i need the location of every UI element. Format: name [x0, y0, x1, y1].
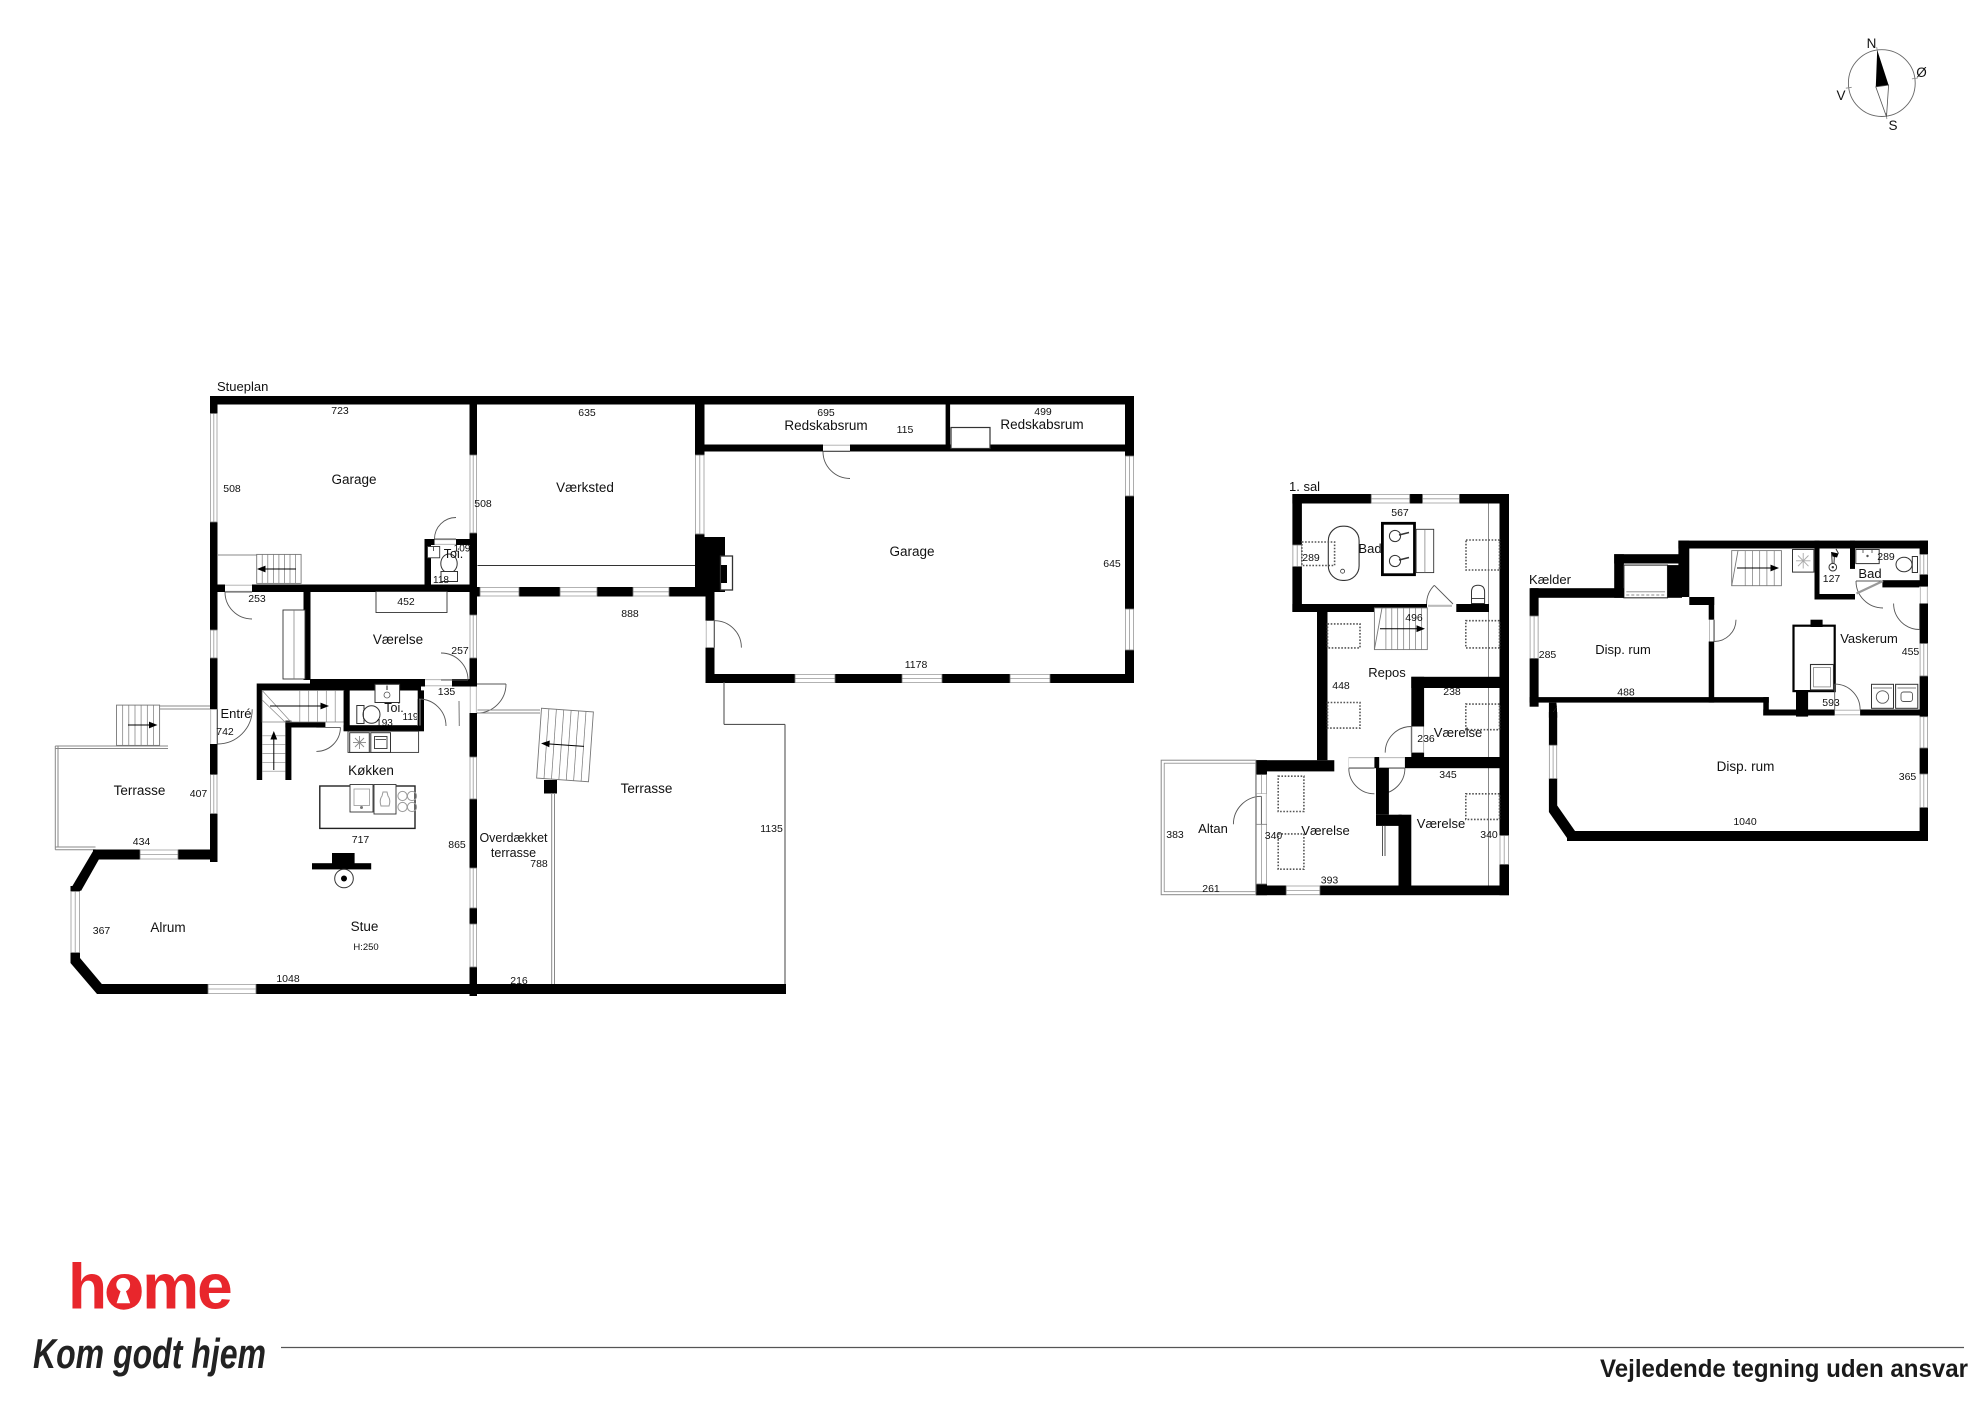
svg-text:499: 499	[1034, 406, 1052, 418]
svg-text:717: 717	[352, 834, 370, 846]
svg-text:393: 393	[1321, 875, 1339, 887]
svg-text:723: 723	[331, 405, 349, 417]
svg-text:216: 216	[510, 975, 528, 987]
svg-text:888: 888	[621, 608, 639, 620]
svg-text:253: 253	[248, 593, 266, 605]
svg-text:Overdækket: Overdækket	[479, 831, 548, 845]
svg-text:645: 645	[1103, 558, 1121, 570]
svg-text:261: 261	[1202, 883, 1220, 895]
svg-text:Redskabsrum: Redskabsrum	[784, 418, 867, 433]
svg-text:407: 407	[190, 788, 208, 800]
svg-text:Terrasse: Terrasse	[621, 781, 673, 796]
svg-text:593: 593	[1822, 697, 1840, 709]
svg-text:340: 340	[1480, 829, 1498, 841]
svg-text:home: home	[68, 1251, 231, 1323]
svg-text:Toi.: Toi.	[384, 701, 403, 715]
svg-text:Kom godt hjem: Kom godt hjem	[33, 1330, 266, 1377]
svg-text:135: 135	[438, 686, 456, 698]
svg-text:Disp. rum: Disp. rum	[1595, 642, 1651, 657]
svg-text:127: 127	[1823, 573, 1841, 585]
svg-text:Repos: Repos	[1368, 665, 1406, 680]
svg-text:788: 788	[530, 858, 548, 870]
svg-text:Alrum: Alrum	[150, 920, 185, 935]
svg-text:Værelse: Værelse	[373, 632, 423, 647]
svg-text:Kælder: Kælder	[1529, 572, 1572, 587]
svg-text:236: 236	[1417, 733, 1435, 745]
svg-text:Vaskerum: Vaskerum	[1840, 631, 1898, 646]
svg-text:345: 345	[1439, 769, 1457, 781]
svg-text:Bad: Bad	[1858, 566, 1881, 581]
svg-text:508: 508	[223, 483, 241, 495]
svg-text:340: 340	[1265, 830, 1283, 842]
svg-text:496: 496	[1405, 612, 1423, 624]
svg-text:Garage: Garage	[889, 544, 934, 559]
svg-text:H:250: H:250	[353, 942, 378, 953]
svg-text:Altan: Altan	[1198, 821, 1228, 836]
svg-text:109: 109	[454, 544, 471, 555]
svg-text:Værelse: Værelse	[1417, 816, 1465, 831]
svg-text:Ø: Ø	[1916, 65, 1927, 80]
svg-text:Køkken: Køkken	[348, 763, 394, 778]
svg-text:S: S	[1888, 118, 1897, 133]
svg-text:289: 289	[1877, 551, 1895, 563]
svg-text:1. sal: 1. sal	[1289, 479, 1320, 494]
svg-text:742: 742	[216, 726, 234, 738]
svg-text:488: 488	[1617, 687, 1635, 699]
svg-text:455: 455	[1902, 646, 1920, 658]
svg-text:1048: 1048	[276, 973, 300, 985]
svg-text:448: 448	[1332, 680, 1350, 692]
svg-text:1040: 1040	[1733, 816, 1757, 828]
svg-text:Stueplan: Stueplan	[217, 379, 268, 394]
svg-text:383: 383	[1166, 829, 1184, 841]
svg-text:238: 238	[1443, 686, 1461, 698]
svg-text:285: 285	[1539, 649, 1557, 661]
svg-text:119: 119	[403, 712, 419, 723]
svg-text:Entré: Entré	[220, 706, 251, 721]
svg-text:118: 118	[433, 575, 449, 586]
svg-text:V: V	[1836, 88, 1845, 103]
svg-text:Stue: Stue	[351, 919, 379, 934]
svg-text:Værelse: Værelse	[1301, 823, 1349, 838]
svg-text:367: 367	[93, 925, 111, 937]
svg-text:N: N	[1867, 36, 1877, 51]
svg-text:1135: 1135	[760, 823, 783, 835]
svg-text:508: 508	[474, 498, 492, 510]
svg-text:452: 452	[397, 596, 415, 608]
svg-text:257: 257	[451, 645, 469, 657]
svg-text:Bad: Bad	[1358, 541, 1381, 556]
svg-text:865: 865	[448, 839, 466, 851]
svg-text:434: 434	[133, 836, 151, 848]
svg-text:1178: 1178	[905, 659, 928, 671]
svg-text:115: 115	[897, 424, 914, 436]
svg-text:567: 567	[1391, 507, 1409, 519]
svg-text:695: 695	[817, 407, 835, 419]
svg-text:Værksted: Værksted	[556, 480, 614, 495]
svg-text:365: 365	[1899, 771, 1917, 783]
svg-text:635: 635	[578, 407, 596, 419]
svg-text:Værelse: Værelse	[1434, 725, 1482, 740]
svg-text:Redskabsrum: Redskabsrum	[1000, 417, 1083, 432]
svg-text:Garage: Garage	[331, 472, 376, 487]
svg-text:Terrasse: Terrasse	[114, 783, 166, 798]
svg-text:193: 193	[376, 718, 393, 729]
svg-text:Vejledende tegning uden ansvar: Vejledende tegning uden ansvar	[1600, 1355, 1968, 1383]
svg-text:Disp. rum: Disp. rum	[1717, 759, 1775, 774]
svg-text:289: 289	[1302, 552, 1320, 564]
